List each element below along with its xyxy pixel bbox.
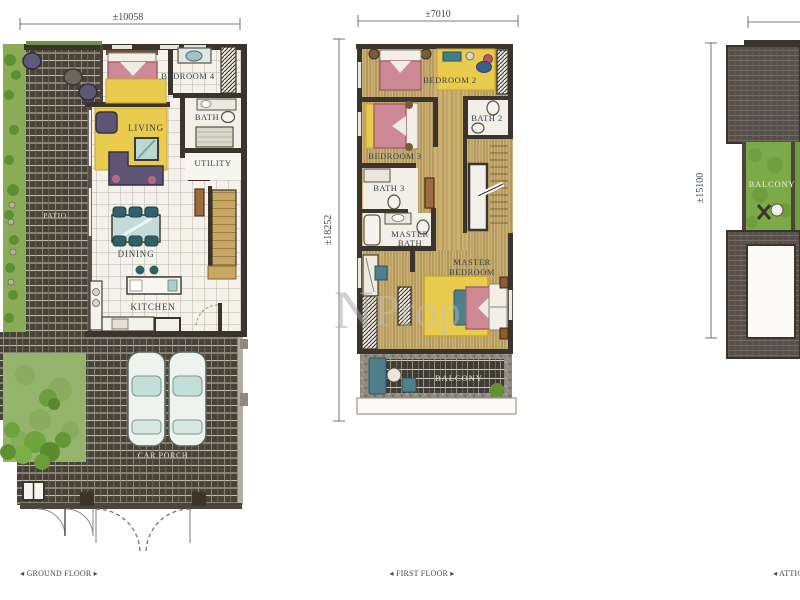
svg-text:UTILITY: UTILITY bbox=[194, 158, 231, 168]
svg-text:BATH 2: BATH 2 bbox=[471, 113, 503, 123]
svg-text:BEDROOM 4: BEDROOM 4 bbox=[161, 71, 215, 81]
svg-text:BALCONY: BALCONY bbox=[435, 373, 483, 383]
svg-text:Prop: Prop bbox=[374, 285, 461, 336]
svg-text:±15100: ±15100 bbox=[695, 173, 706, 204]
svg-text:BALCONY: BALCONY bbox=[749, 179, 796, 189]
svg-text:BATH 3: BATH 3 bbox=[373, 183, 405, 193]
svg-text:CAR PORCH: CAR PORCH bbox=[138, 451, 189, 460]
svg-text:BEDROOM 3: BEDROOM 3 bbox=[368, 151, 421, 161]
svg-text:BEDROOM 2: BEDROOM 2 bbox=[423, 75, 476, 85]
svg-text:±10058: ±10058 bbox=[113, 12, 144, 23]
svg-text:◂ FIRST FLOOR ▸: ◂ FIRST FLOOR ▸ bbox=[390, 569, 455, 578]
svg-text:MASTER: MASTER bbox=[453, 257, 490, 267]
svg-text:KITCHEN: KITCHEN bbox=[130, 302, 175, 312]
svg-text:±7010: ±7010 bbox=[425, 9, 451, 20]
svg-text:LIVING: LIVING bbox=[128, 123, 164, 133]
svg-text:PATIO: PATIO bbox=[43, 211, 67, 220]
svg-text:BATH: BATH bbox=[195, 112, 219, 122]
svg-text:DINING: DINING bbox=[118, 249, 155, 259]
svg-text:◂ ATTIC: ◂ ATTIC bbox=[773, 569, 800, 578]
svg-text:±18252: ±18252 bbox=[323, 215, 334, 246]
svg-text:N: N bbox=[334, 280, 373, 340]
svg-text:◂ GROUND FLOOR ▸: ◂ GROUND FLOOR ▸ bbox=[20, 569, 98, 578]
